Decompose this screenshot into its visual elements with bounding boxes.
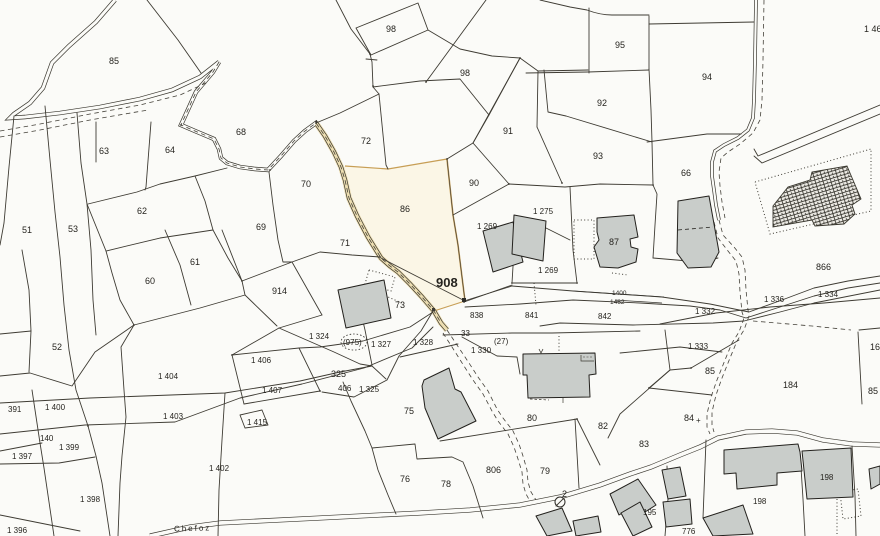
svg-text:86: 86 — [400, 204, 410, 214]
svg-text:1 396: 1 396 — [7, 526, 28, 535]
svg-text:391: 391 — [8, 405, 22, 414]
svg-text:Chefoz: Chefoz — [174, 523, 212, 533]
svg-text:72: 72 — [361, 136, 371, 146]
svg-text:98: 98 — [460, 68, 470, 78]
svg-text:1 407: 1 407 — [262, 386, 283, 395]
svg-text:1 269: 1 269 — [538, 266, 559, 275]
svg-text:806: 806 — [486, 465, 501, 475]
svg-text:1 324: 1 324 — [309, 332, 330, 341]
svg-text:1 325: 1 325 — [359, 385, 380, 394]
svg-text:82: 82 — [598, 421, 608, 431]
svg-text:64: 64 — [165, 145, 175, 155]
svg-text:93: 93 — [593, 151, 603, 161]
svg-text:80: 80 — [527, 413, 537, 423]
svg-text:95: 95 — [615, 40, 625, 50]
svg-text:1 400: 1 400 — [45, 403, 66, 412]
svg-text:85: 85 — [109, 56, 119, 66]
svg-text:61: 61 — [190, 257, 200, 267]
svg-text:1 334: 1 334 — [818, 290, 839, 299]
svg-text:1 332: 1 332 — [695, 307, 716, 316]
svg-text:1 46: 1 46 — [864, 24, 880, 34]
svg-text:94: 94 — [702, 72, 712, 82]
svg-text:(975): (975) — [343, 338, 362, 347]
svg-text:866: 866 — [816, 262, 831, 272]
svg-text:71: 71 — [340, 238, 350, 248]
svg-text:70: 70 — [301, 179, 311, 189]
svg-text:60: 60 — [145, 276, 155, 286]
svg-text:79: 79 — [540, 466, 550, 476]
svg-text:195: 195 — [643, 508, 657, 517]
svg-text:1 336: 1 336 — [764, 295, 785, 304]
svg-text:84: 84 — [684, 413, 694, 423]
svg-text:52: 52 — [52, 342, 62, 352]
svg-text:98: 98 — [386, 24, 396, 34]
svg-text:1 404: 1 404 — [158, 372, 179, 381]
svg-text:63: 63 — [99, 146, 109, 156]
svg-text:1 398: 1 398 — [80, 495, 101, 504]
svg-text:140: 140 — [40, 434, 54, 443]
svg-text:838: 838 — [470, 311, 484, 320]
svg-text:73: 73 — [395, 300, 405, 310]
svg-text:842: 842 — [598, 312, 612, 321]
svg-text:184: 184 — [783, 380, 798, 390]
svg-text:75: 75 — [404, 406, 414, 416]
svg-text:325: 325 — [331, 369, 346, 379]
svg-text:1 406: 1 406 — [251, 356, 272, 365]
svg-text:841: 841 — [525, 311, 539, 320]
svg-text:87: 87 — [609, 237, 619, 247]
svg-text:914: 914 — [272, 286, 287, 296]
svg-text:83: 83 — [639, 439, 649, 449]
svg-text:1 397: 1 397 — [12, 452, 33, 461]
svg-text:1 328: 1 328 — [413, 338, 434, 347]
svg-text:68: 68 — [236, 127, 246, 137]
svg-text:69: 69 — [256, 222, 266, 232]
svg-text:406: 406 — [338, 384, 352, 393]
svg-text:62: 62 — [137, 206, 147, 216]
svg-text:(27): (27) — [494, 337, 509, 346]
svg-text:1 330: 1 330 — [471, 346, 492, 355]
svg-text:33: 33 — [461, 329, 470, 338]
svg-text:1 415: 1 415 — [247, 418, 268, 427]
svg-text:90: 90 — [469, 178, 479, 188]
svg-text:1 399: 1 399 — [59, 443, 80, 452]
svg-text:1 402: 1 402 — [209, 464, 230, 473]
svg-text:76: 76 — [400, 474, 410, 484]
svg-text:198: 198 — [820, 473, 834, 482]
svg-text:66: 66 — [681, 168, 691, 178]
svg-text:92: 92 — [597, 98, 607, 108]
svg-text:198: 198 — [753, 497, 767, 506]
svg-text:51: 51 — [22, 225, 32, 235]
svg-text:1 403: 1 403 — [163, 412, 184, 421]
svg-text:776: 776 — [682, 527, 696, 536]
svg-text:78: 78 — [441, 479, 451, 489]
svg-text:16: 16 — [870, 342, 880, 352]
svg-text:53: 53 — [68, 224, 78, 234]
svg-text:908: 908 — [436, 275, 458, 290]
svg-text:1 327: 1 327 — [371, 340, 392, 349]
svg-text:85: 85 — [868, 386, 878, 396]
svg-text:+: + — [696, 416, 701, 425]
svg-text:85: 85 — [705, 366, 715, 376]
svg-text:2: 2 — [562, 489, 567, 499]
svg-text:91: 91 — [503, 126, 513, 136]
svg-text:1 333: 1 333 — [688, 342, 709, 351]
svg-text:1 269: 1 269 — [477, 222, 498, 231]
svg-text:1 275: 1 275 — [533, 207, 554, 216]
